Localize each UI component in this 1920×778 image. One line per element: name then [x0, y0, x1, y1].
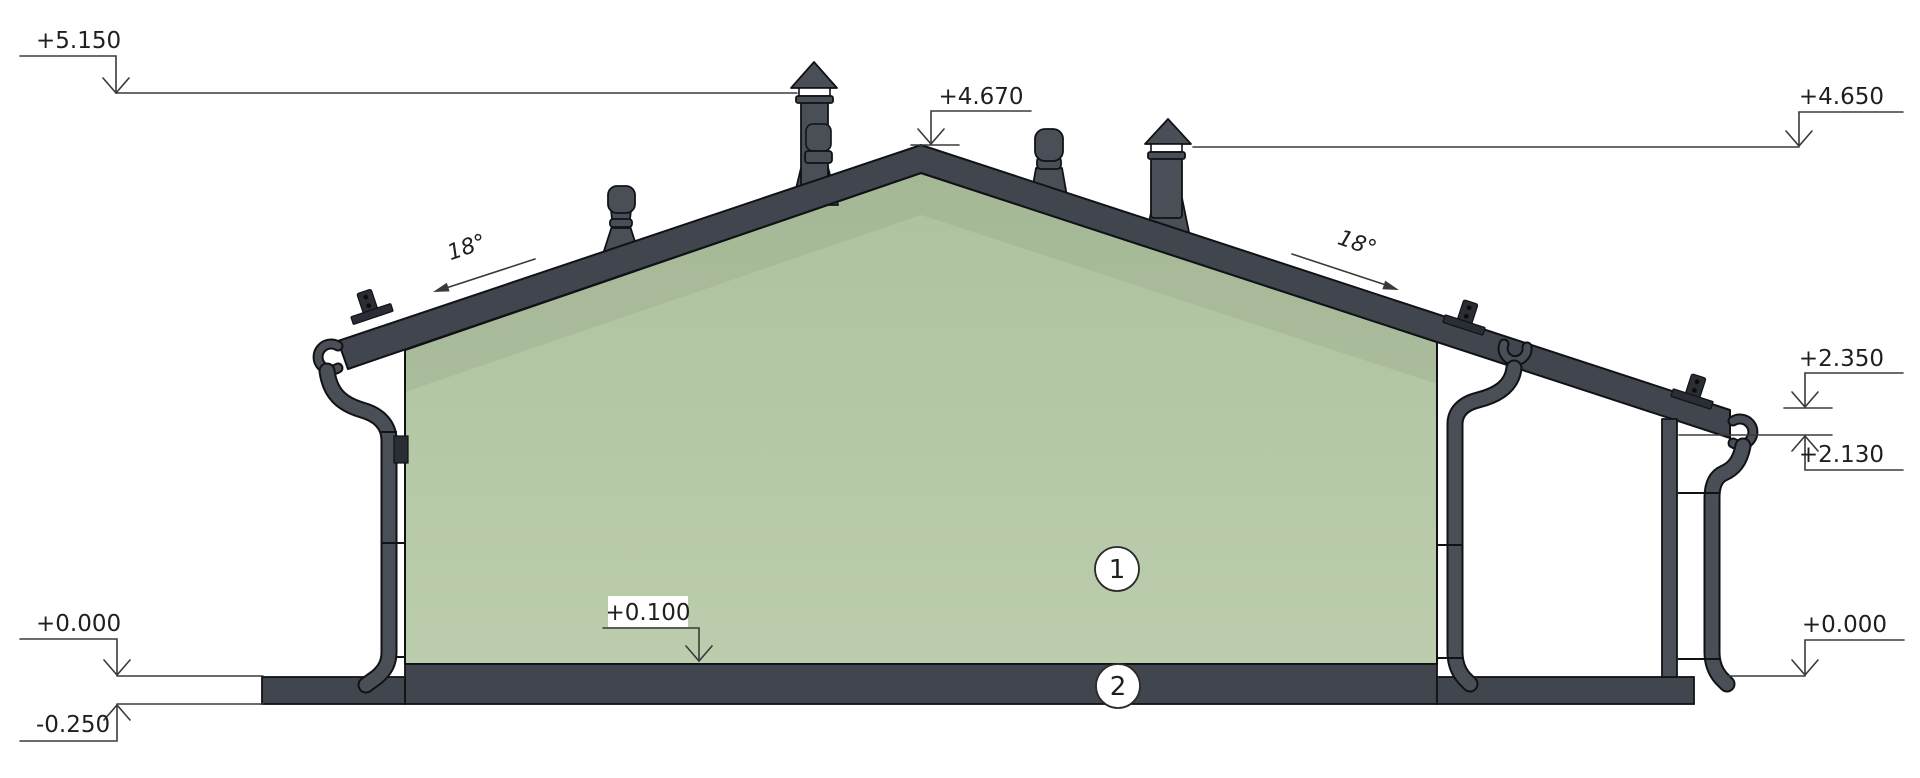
slope-value: 18° — [444, 230, 489, 266]
marker-chimney-top: +5.150 — [20, 28, 797, 93]
chimney-right-collar — [1151, 144, 1182, 152]
chimney-left-ring — [805, 151, 832, 163]
snow-guard-left — [344, 285, 393, 325]
downspout-left-pipe — [327, 371, 389, 685]
chimney-left-cone — [791, 62, 837, 88]
level-value: +2.130 — [1799, 442, 1884, 468]
marker-pavement-bottom: -0.250 — [20, 704, 263, 741]
downspout-right-pipe — [1712, 446, 1743, 684]
chimney-right-body — [1151, 158, 1182, 218]
facade — [405, 173, 1437, 664]
house-section-drawing: +5.150 +4.670 +4.650 +2.350 +2.130 +0.00… — [0, 0, 1920, 778]
marker-leader — [931, 111, 1031, 144]
level-value: +2.350 — [1799, 346, 1884, 372]
vent-right-cap — [1035, 129, 1063, 161]
callout-1-badge: 1 — [1095, 547, 1139, 591]
marker-canopy-eave-top: +2.350 — [1784, 346, 1903, 408]
elevation-drawing-canvas: +5.150 +4.670 +4.650 +2.350 +2.130 +0.00… — [0, 0, 1920, 778]
marker-ground-left: +0.000 — [20, 611, 263, 676]
level-value: +5.150 — [36, 28, 121, 54]
callout-2-badge: 2 — [1096, 664, 1140, 708]
vent-left-ring — [610, 219, 632, 227]
chimney-right-lip — [1148, 152, 1185, 159]
marker-leader — [1805, 373, 1903, 407]
callout-number: 1 — [1109, 555, 1126, 585]
marker-leader — [20, 56, 116, 93]
plinth-slab — [405, 664, 1437, 704]
callout-number: 2 — [1110, 672, 1127, 702]
marker-right-chimney-top: +4.650 — [1193, 84, 1903, 147]
chimney-left-collar — [799, 88, 830, 96]
level-value: +0.100 — [605, 600, 690, 626]
marker-leader — [20, 639, 117, 675]
marker-leader — [1805, 640, 1904, 675]
marker-canopy-eave-underside: +2.130 — [1679, 435, 1903, 470]
vent-left-cap — [608, 186, 635, 213]
chimney-right-cone — [1145, 119, 1191, 144]
slope-arrowhead-icon — [1382, 281, 1399, 290]
slope-arrowhead-icon — [433, 283, 450, 292]
downspout-wall — [1437, 368, 1514, 684]
level-value: +4.650 — [1799, 84, 1884, 110]
chimney-left-lip — [796, 96, 833, 103]
downspout-right — [1678, 446, 1743, 684]
facade-wall — [405, 173, 1437, 664]
slope-value: 18° — [1335, 226, 1380, 262]
marker-ground-right: +0.000 — [1728, 612, 1904, 676]
level-value: -0.250 — [36, 712, 110, 738]
marker-ridge: +4.670 — [911, 84, 1031, 145]
downspout-left — [327, 371, 408, 685]
downspout-left-bracket — [394, 436, 408, 463]
canopy-post — [1662, 419, 1677, 677]
downspout-wall-pipe — [1455, 368, 1514, 684]
chimney-left-panel — [806, 124, 831, 151]
level-value: +0.000 — [36, 611, 121, 637]
marker-leader — [1799, 112, 1903, 146]
level-value: +0.000 — [1802, 612, 1887, 638]
level-value: +4.670 — [938, 84, 1023, 110]
